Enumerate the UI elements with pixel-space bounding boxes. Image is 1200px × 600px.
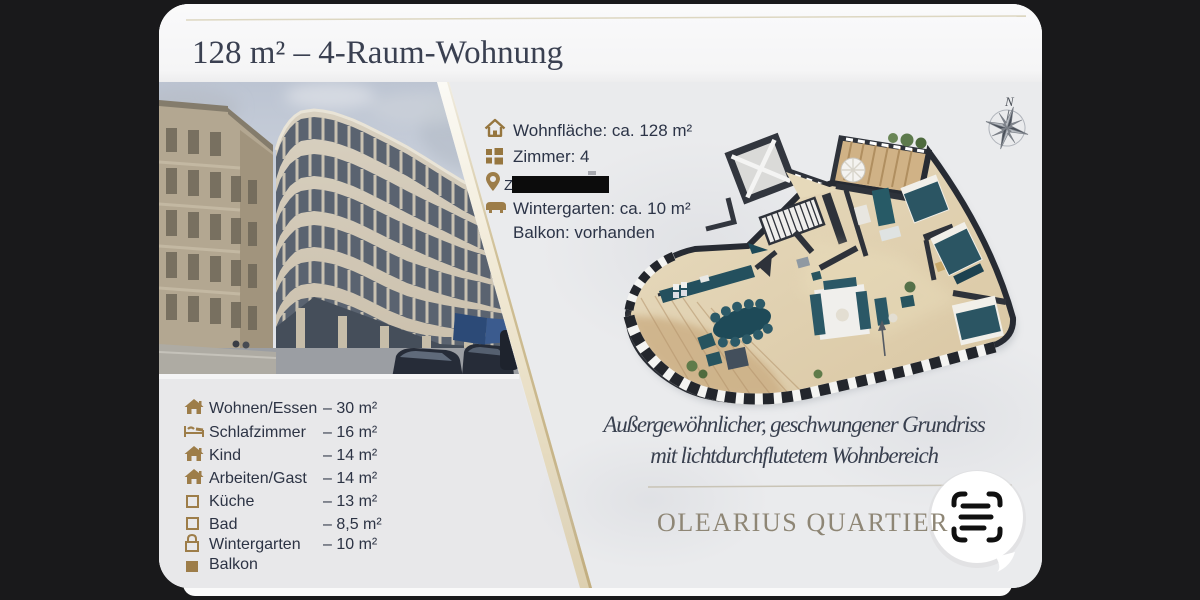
svg-text:Wohnen/Essen: Wohnen/Essen — [209, 400, 317, 417]
svg-text:Z: Z — [504, 177, 513, 194]
svg-text:– 14 m²: – 14 m² — [323, 447, 378, 464]
svg-text:Schlafzimmer: Schlafzimmer — [209, 424, 307, 441]
svg-text:– 16 m²: – 16 m² — [323, 424, 378, 441]
svg-text:Außergewöhnlicher, geschwungen: Außergewöhnlicher, geschwungener Grundri… — [601, 412, 985, 437]
svg-text:OLEARIUS QUARTIER: OLEARIUS QUARTIER — [657, 508, 949, 537]
svg-text:– 14 m²: – 14 m² — [323, 470, 378, 487]
svg-text:Wintergarten: ca. 10 m²: Wintergarten: ca. 10 m² — [513, 199, 691, 218]
svg-text:128 m² – 4-Raum-Wohnung: 128 m² – 4-Raum-Wohnung — [192, 35, 563, 71]
svg-text:Balkon: vorhanden: Balkon: vorhanden — [513, 223, 655, 242]
svg-text:Balkon: Balkon — [209, 556, 258, 573]
svg-text:Bad: Bad — [209, 516, 237, 533]
svg-text:– 8,5 m²: – 8,5 m² — [323, 516, 382, 533]
svg-text:Küche: Küche — [209, 493, 254, 510]
svg-text:– 13 m²: – 13 m² — [323, 493, 378, 510]
svg-text:mit lichtdurchflutetem Wohnber: mit lichtdurchflutetem Wohnbereich — [650, 443, 938, 468]
svg-text:Kind: Kind — [209, 447, 241, 464]
svg-text:– 10 m²: – 10 m² — [323, 536, 378, 553]
svg-text:Wohnfläche: ca. 128 m²: Wohnfläche: ca. 128 m² — [513, 121, 693, 140]
svg-text:– 30 m²: – 30 m² — [323, 400, 378, 417]
svg-text:Wintergarten: Wintergarten — [209, 536, 301, 553]
svg-text:N: N — [1004, 94, 1015, 109]
svg-text:Zimmer: 4: Zimmer: 4 — [513, 147, 590, 166]
svg-text:Arbeiten/Gast: Arbeiten/Gast — [209, 470, 307, 487]
